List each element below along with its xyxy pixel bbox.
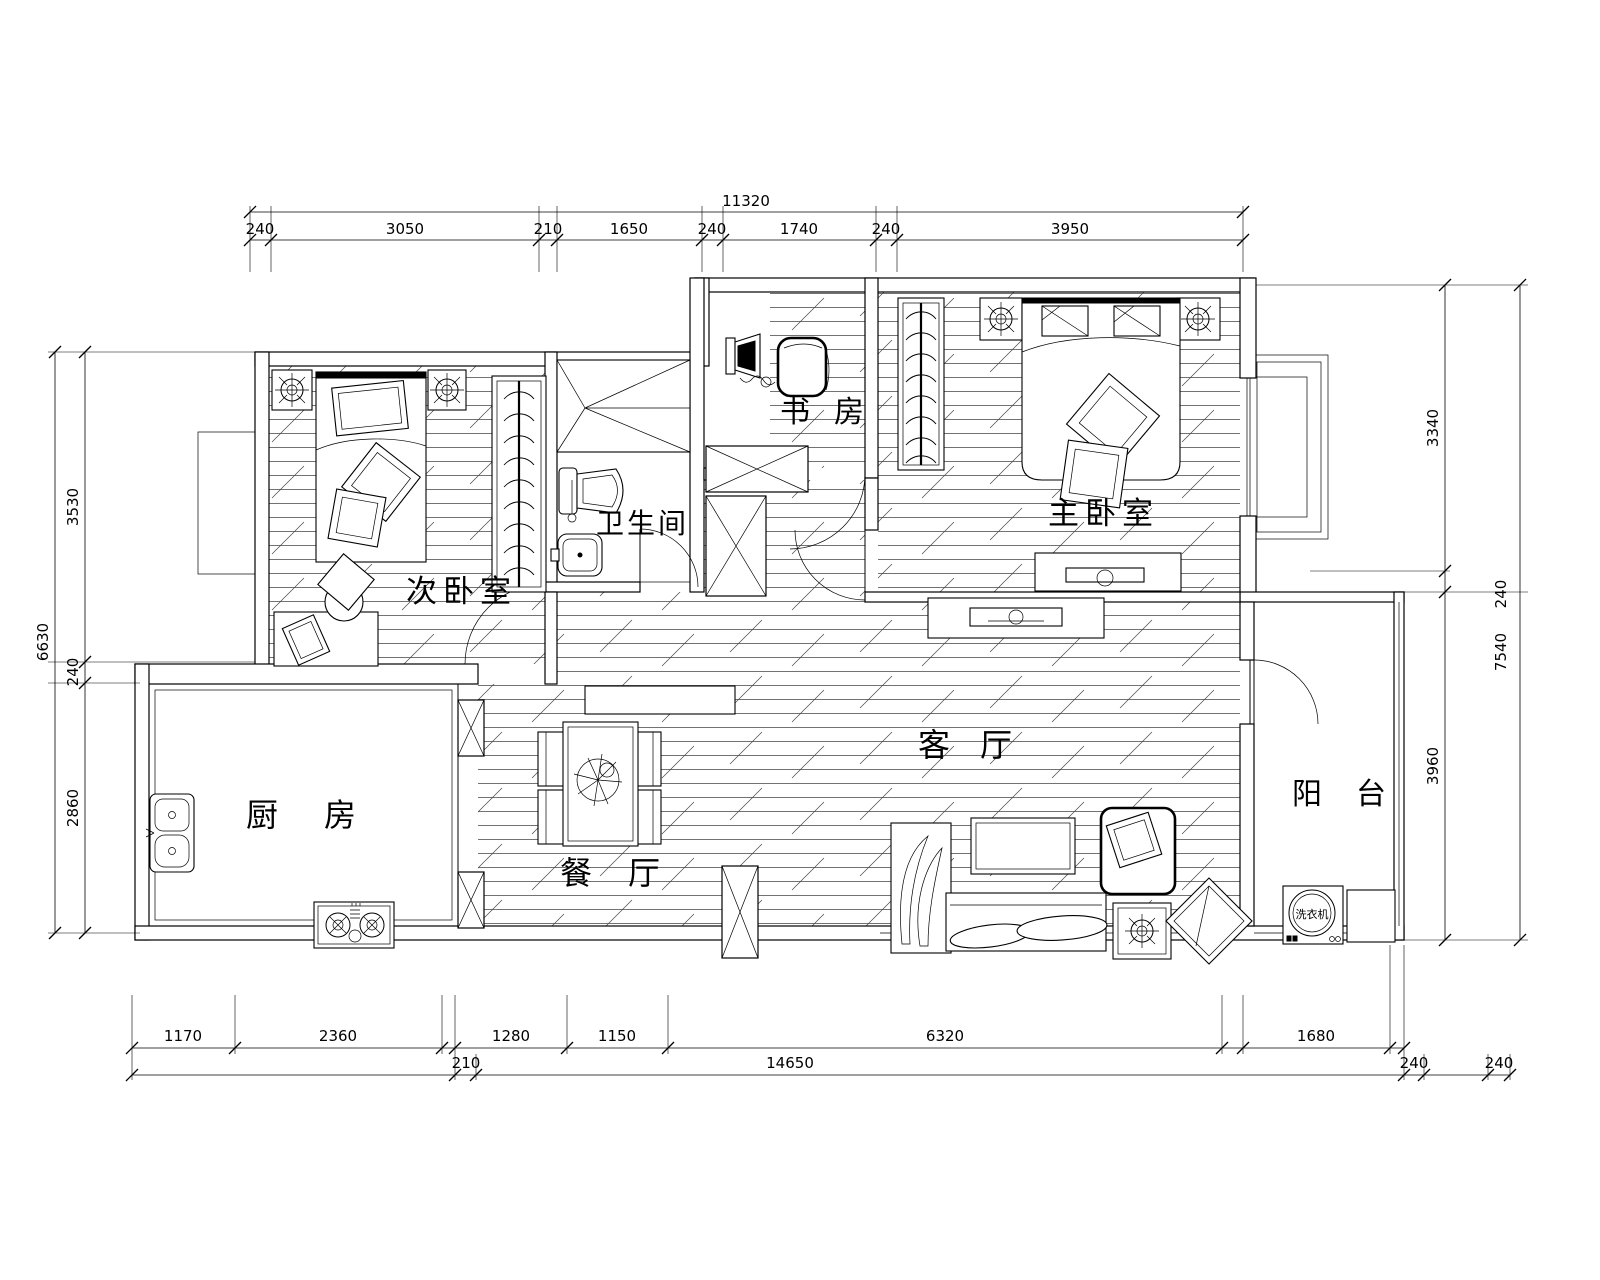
corridor-floor [557,592,1240,684]
dim-right-0: 3340 [1424,409,1442,447]
second-bedroom-label: 次卧室 [406,574,517,610]
side-table [1113,903,1171,959]
master-bedroom-label: 主卧室 [1048,496,1159,532]
bed-master [1022,298,1180,508]
study-chair [778,338,829,396]
dim-left-2: 2860 [64,789,82,827]
dim-top-3: 1650 [610,220,648,238]
living-label: 客厅 [918,726,1042,764]
column-dining [722,866,758,958]
dim-bottom2-1: 14650 [766,1054,814,1072]
dim-top-5: 1740 [780,220,818,238]
washer-label: 洗衣机 [1296,907,1329,921]
wardrobe-second [492,376,546,592]
column-kitchen-bottom [458,872,484,928]
dimensions-top: 11320 240 3050 210 1650 240 1740 240 395… [244,192,1249,272]
plant [891,823,951,953]
dim-right-2: 3960 [1424,747,1442,785]
dim-right-1: 240 [1492,580,1510,609]
bathroom-sink [551,534,602,576]
dimensions-right: 3340 240 3960 7540 [1256,279,1528,946]
stove [314,902,394,948]
sofa [946,893,1108,952]
dim-bottom1-1: 2360 [319,1027,357,1045]
bed-second [316,372,426,562]
bathroom-label: 卫生间 [596,507,689,540]
column-hall-a [706,446,808,492]
dim-top-7: 3950 [1051,220,1089,238]
wardrobe-master [898,298,944,470]
dimensions-bottom: 1170 2360 1280 1150 6320 1680 210 14650 … [126,945,1516,1081]
tv-monitor-icon [726,334,775,387]
floor-plan-canvas: 书房 主卧室 次卧室 卫生间 厨房 餐厅 客厅 阳台 洗衣机 11320 240… [0,0,1600,1280]
column-hall-b [706,496,766,596]
kitchen-sink [146,794,194,872]
shower-area [557,360,690,452]
dim-left-0: 3530 [64,488,82,526]
balcony-label: 阳台 [1292,777,1420,812]
tv-cabinet-master [1035,553,1181,591]
lamp-icon [275,373,309,407]
kitchen-label: 厨房 [246,796,402,834]
dim-top-2: 210 [534,220,563,238]
bay-window-right [1247,355,1328,539]
tv-cabinet-living [928,598,1104,638]
dim-bottom1-0: 1170 [164,1027,202,1045]
study-label: 书房 [780,395,888,430]
lamp-icon [984,302,1018,336]
dim-top-1: 3050 [386,220,424,238]
dim-top-total: 11320 [722,192,770,210]
balcony-floor [1250,600,1394,926]
column-kitchen-top [458,700,484,756]
balcony-cabinet [1347,890,1395,942]
lamp-icon [430,373,464,407]
floor-plan-page: 书房 主卧室 次卧室 卫生间 厨房 餐厅 客厅 阳台 洗衣机 11320 240… [0,0,1600,1280]
bathroom-fixtures [551,360,690,576]
armchair [1101,808,1175,894]
dining-table [563,722,638,846]
sideboard [585,686,735,714]
balcony-door [1254,660,1318,724]
coffee-table [971,818,1075,874]
dim-bottom2-3: 240 [1485,1054,1514,1072]
dim-bottom1-5: 1680 [1297,1027,1335,1045]
lamp-icon [1181,302,1215,336]
dim-bottom1-3: 1150 [598,1027,636,1045]
dim-left-total: 6630 [34,623,52,661]
dining-label: 餐厅 [560,854,696,892]
dim-bottom1-2: 1280 [492,1027,530,1045]
dim-bottom1-4: 6320 [926,1027,964,1045]
dim-right-total: 7540 [1492,633,1510,671]
